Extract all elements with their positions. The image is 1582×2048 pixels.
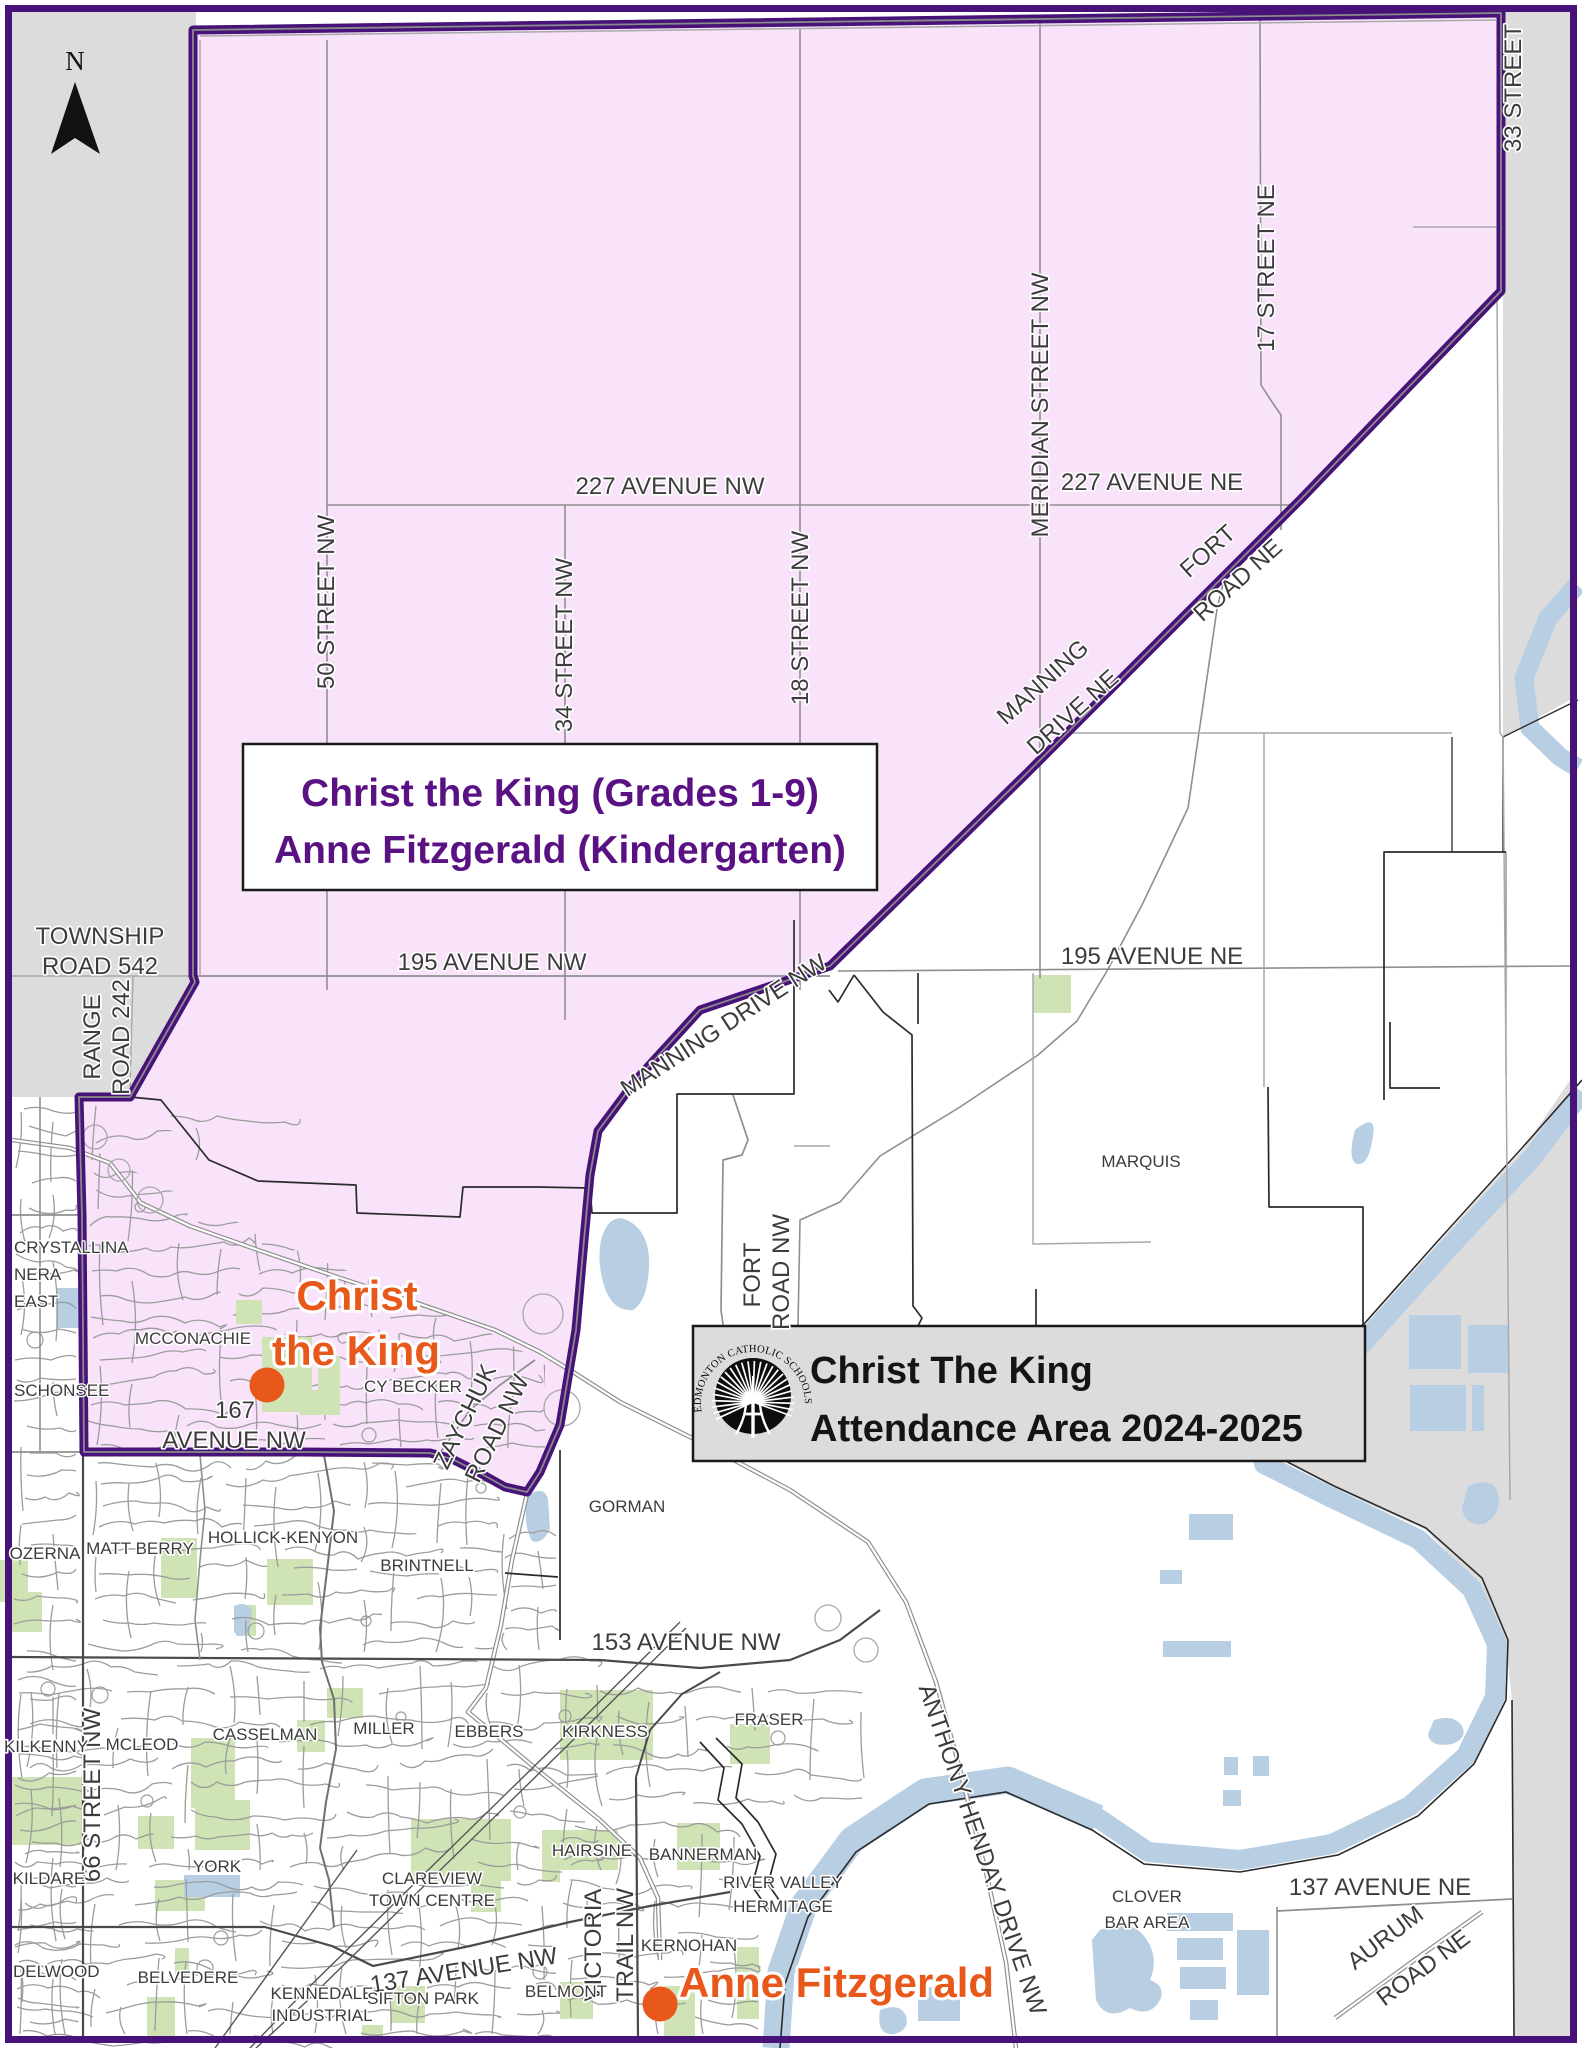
svg-text:SIFTON PARK: SIFTON PARK <box>367 1989 479 2008</box>
svg-text:N: N <box>65 46 85 76</box>
svg-text:137 AVENUE NE: 137 AVENUE NE <box>1289 1874 1471 1901</box>
svg-text:34 STREET NW: 34 STREET NW <box>551 558 578 733</box>
svg-text:RIVER VALLEY: RIVER VALLEY <box>723 1873 843 1892</box>
svg-text:KIRKNESS: KIRKNESS <box>562 1722 648 1741</box>
svg-text:GORMAN: GORMAN <box>589 1497 666 1516</box>
svg-text:TOWN CENTRE: TOWN CENTRE <box>369 1891 495 1910</box>
svg-text:Attendance Area 2024-2025: Attendance Area 2024-2025 <box>810 1408 1303 1450</box>
svg-text:ROAD NW: ROAD NW <box>768 1214 795 1330</box>
svg-text:FRASER: FRASER <box>735 1710 804 1729</box>
svg-text:MCLEOD: MCLEOD <box>106 1735 179 1754</box>
svg-text:TRAIL NW: TRAIL NW <box>612 1888 639 2002</box>
svg-text:TOWNSHIP: TOWNSHIP <box>36 923 165 950</box>
svg-text:HERMITAGE: HERMITAGE <box>733 1897 833 1916</box>
svg-text:KILKENNY: KILKENNY <box>4 1737 88 1756</box>
svg-text:ROAD 542: ROAD 542 <box>42 953 158 980</box>
svg-text:MCCONACHIE: MCCONACHIE <box>135 1329 251 1348</box>
svg-text:EAST: EAST <box>14 1292 58 1311</box>
svg-text:NERA: NERA <box>14 1265 62 1284</box>
svg-text:BRINTNELL: BRINTNELL <box>380 1556 474 1575</box>
svg-text:18 STREET NW: 18 STREET NW <box>787 531 814 706</box>
svg-text:CRYSTALLINA: CRYSTALLINA <box>14 1238 129 1257</box>
svg-text:33 STREET: 33 STREET <box>1500 24 1527 152</box>
svg-text:FORT: FORT <box>739 1242 766 1307</box>
svg-text:YORK: YORK <box>193 1857 242 1876</box>
svg-text:50 STREET NW: 50 STREET NW <box>313 515 340 690</box>
svg-text:227 AVENUE NW: 227 AVENUE NW <box>576 473 765 500</box>
svg-text:CLOVER: CLOVER <box>1112 1887 1182 1906</box>
svg-text:CY BECKER: CY BECKER <box>364 1377 462 1396</box>
svg-text:KENNEDALE: KENNEDALE <box>271 1984 374 2003</box>
svg-text:BELVEDERE: BELVEDERE <box>138 1968 239 1987</box>
svg-text:Anne Fitzgerald: Anne Fitzgerald <box>679 1959 994 2006</box>
svg-text:OZERNA: OZERNA <box>10 1544 82 1563</box>
svg-text:EBBERS: EBBERS <box>455 1722 524 1741</box>
svg-text:Christ The King: Christ The King <box>810 1350 1093 1392</box>
svg-text:167: 167 <box>215 1397 255 1424</box>
svg-text:Christ the King (Grades 1-9): Christ the King (Grades 1-9) <box>301 772 819 815</box>
svg-text:KILDARE: KILDARE <box>13 1869 86 1888</box>
svg-text:BANNERMAN: BANNERMAN <box>649 1845 758 1864</box>
svg-text:AVENUE NW: AVENUE NW <box>162 1427 306 1454</box>
svg-text:195 AVENUE NE: 195 AVENUE NE <box>1061 943 1243 970</box>
svg-text:Christ: Christ <box>296 1272 417 1319</box>
svg-text:MARQUIS: MARQUIS <box>1101 1152 1180 1171</box>
svg-text:DELWOOD: DELWOOD <box>13 1962 100 1981</box>
svg-text:MERIDIAN STREET NW: MERIDIAN STREET NW <box>1027 272 1054 537</box>
svg-text:17 STREET NE: 17 STREET NE <box>1253 184 1280 352</box>
svg-text:153 AVENUE NW: 153 AVENUE NW <box>592 1629 781 1656</box>
svg-text:SCHONSEE: SCHONSEE <box>14 1381 109 1400</box>
svg-text:CLAREVIEW: CLAREVIEW <box>382 1869 482 1888</box>
svg-text:the King: the King <box>272 1327 440 1374</box>
svg-text:227 AVENUE NE: 227 AVENUE NE <box>1061 469 1243 496</box>
svg-text:KERNOHAN: KERNOHAN <box>641 1936 737 1955</box>
svg-text:BAR AREA: BAR AREA <box>1104 1913 1190 1932</box>
svg-text:MILLER: MILLER <box>353 1719 414 1738</box>
svg-text:CASSELMAN: CASSELMAN <box>213 1725 318 1744</box>
svg-text:66 STREET NW: 66 STREET NW <box>79 1708 106 1883</box>
svg-text:BELMONT: BELMONT <box>525 1982 607 2001</box>
svg-text:INDUSTRIAL: INDUSTRIAL <box>271 2006 372 2025</box>
svg-text:HOLLICK-KENYON: HOLLICK-KENYON <box>208 1528 358 1547</box>
svg-text:HAIRSINE: HAIRSINE <box>552 1841 632 1860</box>
svg-text:MATT BERRY: MATT BERRY <box>86 1539 194 1558</box>
svg-text:195 AVENUE NW: 195 AVENUE NW <box>398 949 587 976</box>
svg-text:RANGE: RANGE <box>79 994 106 1079</box>
svg-text:Anne Fitzgerald (Kindergarten): Anne Fitzgerald (Kindergarten) <box>274 829 846 872</box>
svg-text:ROAD 242: ROAD 242 <box>108 979 135 1095</box>
